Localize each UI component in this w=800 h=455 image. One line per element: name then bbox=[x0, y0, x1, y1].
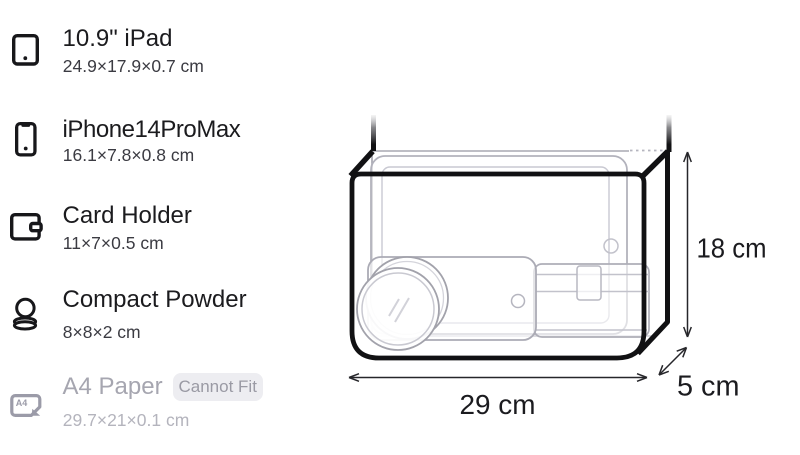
svg-text:29 cm: 29 cm bbox=[460, 389, 536, 420]
svg-text:5 cm: 5 cm bbox=[677, 371, 740, 403]
svg-text:18 cm: 18 cm bbox=[697, 233, 767, 264]
